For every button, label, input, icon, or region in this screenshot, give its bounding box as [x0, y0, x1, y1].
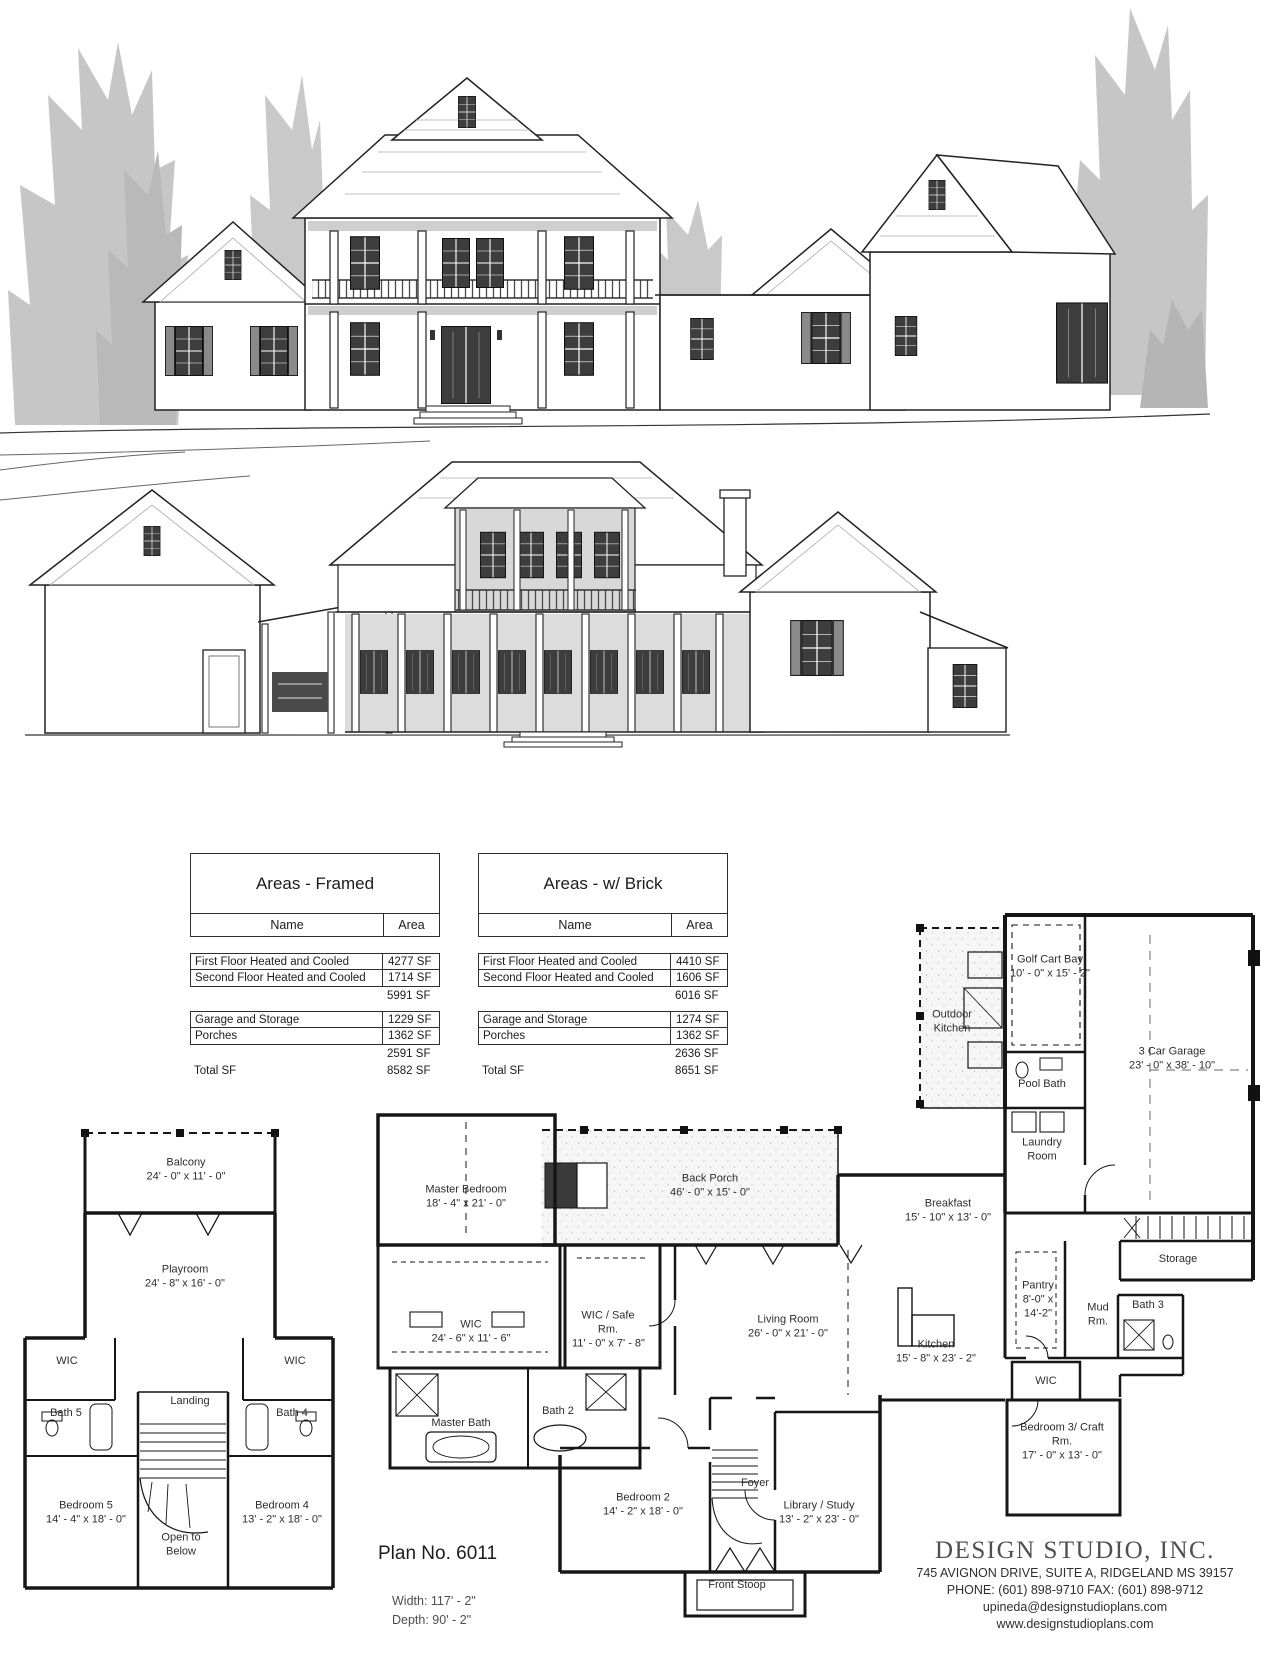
front-elevation — [0, 8, 1210, 455]
room-label-bath5: Bath 5 — [41, 1407, 91, 1421]
column-header-area: Area — [672, 914, 727, 936]
table-row-total: Total SF8651 SF — [478, 1062, 728, 1079]
room-label-breakfast: Breakfast15' - 10" x 13' - 0" — [886, 1197, 1011, 1225]
company-website: www.designstudioplans.com — [885, 1616, 1265, 1633]
room-label-bath3: Bath 3 — [1123, 1299, 1173, 1313]
table-rows: First Floor Heated and Cooled4410 SF Sec… — [478, 953, 728, 1079]
room-label-garage: 3 Car Garage23' - 0" x 38' - 10" — [1110, 1045, 1235, 1073]
room-label-playroom: Playroom24' - 8" x 16' - 0" — [120, 1263, 250, 1291]
plan-dimensions: Width: 117' - 2" Depth: 90' - 2" — [392, 1592, 476, 1631]
company-address: 745 AVIGNON DRIVE, SUITE A, RIDGELAND MS… — [885, 1565, 1265, 1582]
company-name: DESIGN STUDIO, INC. — [885, 1537, 1265, 1565]
room-label-living-room: Living Room26' - 0" x 21' - 0" — [723, 1313, 853, 1341]
areas-framed-table: Areas - Framed Name Area First Floor Hea… — [190, 853, 440, 1079]
table-row: First Floor Heated and Cooled4277 SF — [190, 953, 440, 970]
room-label-bedroom3: Bedroom 3/ Craft Rm.17' - 0" x 13' - 0" — [1020, 1421, 1104, 1462]
areas-brick-table: Areas - w/ Brick Name Area First Floor H… — [478, 853, 728, 1079]
table-row-subtotal: 2636 SF — [478, 1045, 728, 1062]
room-label-foyer: Foyer — [730, 1477, 780, 1491]
room-label-mud-room: Mud Rm. — [1077, 1301, 1119, 1329]
room-label-landing: Landing — [160, 1395, 220, 1409]
room-label-pool-bath: Pool Bath — [1006, 1078, 1078, 1092]
table-row: Second Floor Heated and Cooled1714 SF — [190, 970, 440, 987]
room-label-wic-back: WIC — [1026, 1375, 1066, 1389]
table-row-subtotal: 6016 SF — [478, 987, 728, 1004]
room-label-bath4: Bath 4 — [267, 1407, 317, 1421]
table-header: Name Area — [478, 914, 728, 937]
rear-elevation — [0, 452, 1010, 747]
room-label-back-porch: Back Porch46' - 0" x 15' - 0" — [645, 1172, 775, 1200]
table-rows: First Floor Heated and Cooled4277 SF Sec… — [190, 953, 440, 1079]
plan-width: Width: 117' - 2" — [392, 1592, 476, 1611]
room-label-golf-cart-bay: Golf Cart Bay10' - 0" x 15' - 2" — [995, 953, 1105, 981]
table-row-subtotal: 5991 SF — [190, 987, 440, 1004]
table-row-subtotal: 2591 SF — [190, 1045, 440, 1062]
table-row-total: Total SF8582 SF — [190, 1062, 440, 1079]
room-label-master-bedroom: Master Bedroom18' - 4" x 21' - 0" — [406, 1183, 526, 1211]
room-label-bedroom2: Bedroom 214' - 2" x 18' - 0" — [593, 1491, 693, 1519]
room-label-wic-master: WIC24' - 6" x 11' - 6" — [411, 1318, 531, 1346]
company-phone-fax: PHONE: (601) 898-9710 FAX: (601) 898-971… — [885, 1582, 1265, 1599]
table-row: Garage and Storage1274 SF — [478, 1011, 728, 1028]
column-header-name: Name — [191, 914, 384, 936]
room-label-outdoor-kitchen: Outdoor Kitchen — [922, 1008, 982, 1036]
room-label-open-to-below: Open to Below — [149, 1531, 213, 1559]
table-row: Porches1362 SF — [478, 1028, 728, 1045]
plan-number: Plan No. 6011 — [378, 1543, 497, 1565]
room-label-wic-left: WIC — [47, 1355, 87, 1369]
room-label-laundry: Laundry Room — [1012, 1136, 1072, 1164]
title-block: DESIGN STUDIO, INC. 745 AVIGNON DRIVE, S… — [885, 1537, 1265, 1633]
table-title: Areas - Framed — [190, 853, 440, 914]
room-label-kitchen: Kitchen15' - 8" x 23' - 2" — [879, 1338, 994, 1366]
column-header-area: Area — [384, 914, 439, 936]
room-label-balcony: Balcony24' - 0" x 11' - 0" — [121, 1156, 251, 1184]
plan-depth: Depth: 90' - 2" — [392, 1611, 476, 1630]
room-label-library: Library / Study13' - 2" x 23' - 0" — [764, 1499, 874, 1527]
table-row: Second Floor Heated and Cooled1606 SF — [478, 970, 728, 987]
room-label-pantry: Pantry8'-0" x 14'-2" — [1011, 1279, 1065, 1320]
room-label-bath2: Bath 2 — [533, 1405, 583, 1419]
table-row: Garage and Storage1229 SF — [190, 1011, 440, 1028]
room-label-master-bath: Master Bath — [416, 1417, 506, 1431]
company-email: upineda@designstudioplans.com — [885, 1599, 1265, 1616]
plan-sheet: Areas - Framed Name Area First Floor Hea… — [0, 0, 1280, 1657]
room-label-storage: Storage — [1148, 1253, 1208, 1267]
table-row: First Floor Heated and Cooled4410 SF — [478, 953, 728, 970]
room-label-front-stoop: Front Stoop — [692, 1579, 782, 1593]
table-row: Porches1362 SF — [190, 1028, 440, 1045]
table-header: Name Area — [190, 914, 440, 937]
column-header-name: Name — [479, 914, 672, 936]
table-title: Areas - w/ Brick — [478, 853, 728, 914]
room-label-safe-room: WIC / Safe Rm.11' - 0" x 7' - 8" — [572, 1309, 644, 1350]
room-label-bedroom5: Bedroom 514' - 4" x 18' - 0" — [39, 1499, 134, 1527]
room-label-wic-right: WIC — [275, 1355, 315, 1369]
room-label-bedroom4: Bedroom 413' - 2" x 18' - 0" — [235, 1499, 330, 1527]
